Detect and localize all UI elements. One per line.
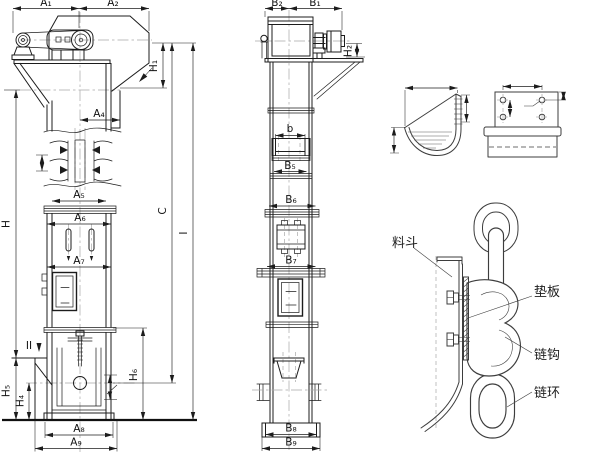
hole-leader-line [524,101,540,106]
head-drum-casing [268,17,313,62]
side-elevation-view: II A₁ A₂ A₄ A₅ A₆ A₇ A₈ A₉ H [1,0,198,452]
dim-label-b6: B₆ [285,194,296,206]
door-hinge [42,274,47,281]
dim-label-b1: B₁ [309,0,320,9]
dim-label-b2: B₂ [271,0,282,9]
chain-hook [467,280,520,376]
section-view-arrow [37,343,42,352]
dim-label-a6: A₆ [74,212,85,224]
chain-attachment-front [277,221,305,254]
dim-label-b: b [287,123,294,135]
motor-coupling [331,31,341,52]
dim-label-b8: B₈ [285,423,296,435]
dim-label-a9: A₉ [70,437,81,449]
plate-detail-view [484,85,566,157]
dim-label-h5: H₅ [1,385,13,397]
bucket-detail-view [390,88,470,156]
bucket-front [270,139,312,179]
bucket-chain-section [36,128,121,187]
bucket-top-flange [437,257,462,264]
bucket-callout-leader [414,248,452,277]
dim-label-h4: H₄ [15,395,27,407]
dim-label-i: I [178,231,190,234]
bucket-bottom-curve [421,382,463,432]
dim-label-b7: B₇ [285,255,296,267]
callout-chain-hook: 链钩 [534,348,560,363]
casing-walls [270,62,312,423]
dim-label-h6: H₆ [128,369,140,381]
dim-label-a8: A₈ [73,423,84,435]
callout-chain-link: 链环 [534,386,560,401]
head-platform [265,59,363,63]
dim-label-b5: B₅ [284,160,295,172]
technical-drawing: II A₁ A₂ A₄ A₅ A₆ A₇ A₈ A₉ H [0,0,600,456]
front-elevation-view: B₂ B₁ H₂ b B₅ B₆ B₇ B₈ B₉ [252,0,365,452]
drawing-page: II A₁ A₂ A₄ A₅ A₆ A₇ A₈ A₉ H [0,0,600,456]
dim-label-a2: A₂ [107,0,118,9]
dim-label-a4: A₄ [93,108,104,120]
head-section [12,16,152,107]
side-view-dimensions: A₁ A₂ A₄ A₅ A₆ A₇ A₈ A₉ H H₅ H₄ [1,0,197,452]
dim-label-a1: A₁ [40,0,51,9]
dim-label-a7: A₇ [73,255,84,267]
dim-label-h: H [1,220,13,228]
dim-label-c: C [157,207,169,214]
bucket-back-sheet [459,261,463,385]
section-marker-2: II [26,340,32,352]
dim-label-h2: H₂ [343,45,355,57]
shaft-bearing [315,33,323,48]
callout-pad-plate: 垫板 [534,284,560,300]
plate-flange [484,127,561,136]
drive-belt [23,31,81,50]
dim-label-a5: A₅ [73,189,84,201]
dim-label-h1: H₁ [148,60,160,72]
callout-bucket: 料斗 [392,236,418,251]
chain-attachment-detail-view: 料斗 垫板 链钩 链环 [392,203,560,438]
door-hinge [42,288,47,295]
dim-label-b9: B₉ [285,437,296,449]
